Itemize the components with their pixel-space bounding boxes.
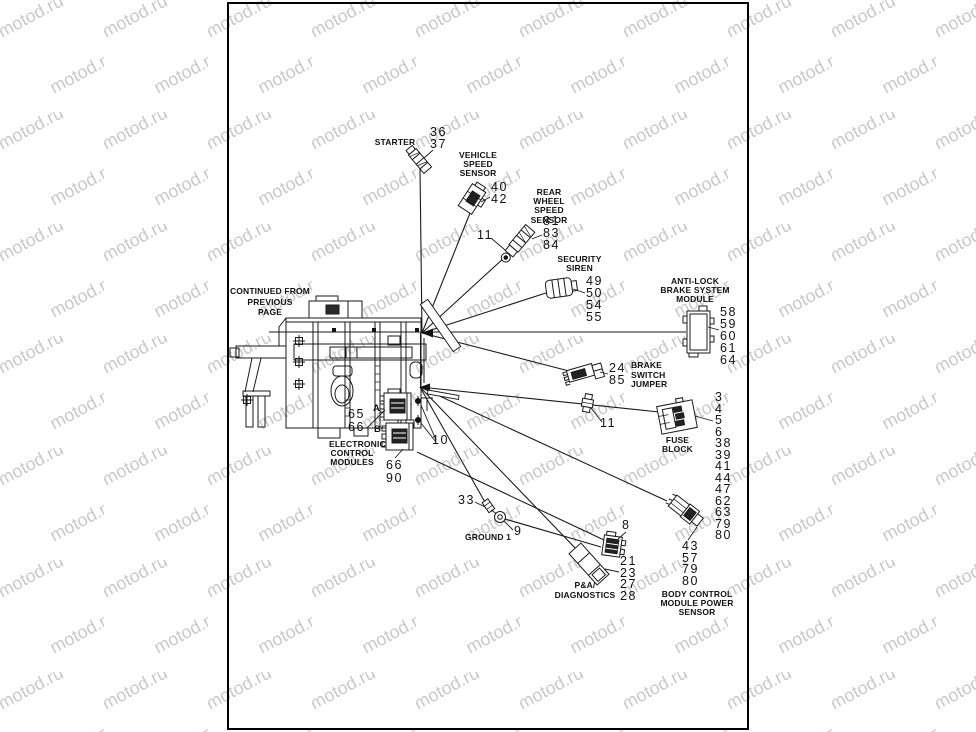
bcm-power-sensor-callout-numbers: 43 57 79 80: [682, 541, 699, 587]
brake-switch-jumper-label: BRAKE SWITCH JUMPER: [631, 361, 671, 390]
pa-diag-ref-8: 8: [622, 519, 631, 531]
ground-1-label: GROUND 1: [462, 533, 514, 542]
brake-switch-jumper-callout-numbers: 24 85: [609, 362, 626, 386]
parts-diagram-page: { "watermark": { "text": "motod.ru", "co…: [0, 0, 976, 732]
starter-callout-numbers: 36 37: [430, 126, 447, 150]
fuse-block-label: FUSE BLOCK: [658, 436, 697, 454]
pa-diagnostics-label: P&A/ DIAGNOSTICS: [551, 581, 619, 600]
vehicle-speed-sensor-callout-numbers: 40 42: [491, 181, 508, 205]
abs-module-label: ANTI-LOCK BRAKE SYSTEM MODULE: [659, 277, 731, 305]
ground-ref-9: 9: [514, 525, 523, 537]
starter-label: STARTER: [372, 138, 418, 147]
abs-module-part: [683, 306, 714, 357]
rear-wheel-speed-sensor-callout-numbers: 81 83 84: [543, 215, 560, 251]
ecm-module-a: [380, 389, 411, 420]
ecm-ref-10: 10: [432, 434, 449, 446]
pa-diag-callout-numbers: 21 23 27 28: [620, 556, 637, 602]
jumper-ref-11: 11: [600, 417, 616, 429]
security-siren-label: SECURITY SIREN: [551, 255, 608, 273]
continued-from-previous-page-note: CONTINUED FROM PREVIOUS PAGE: [229, 286, 311, 318]
ecm-tag-a: A: [373, 404, 380, 414]
bcm-power-sensor-label: BODY CONTROL MODULE POWER SENSOR: [659, 590, 735, 618]
fuse-block-callout-numbers: 3 4 5 6 38 39 41 44 47 62 63 79 80: [715, 392, 732, 542]
ground-ref-33: 33: [458, 494, 475, 506]
watermark-layer: [0, 0, 976, 732]
vehicle-speed-sensor-label: VEHICLE SPEED SENSOR: [454, 151, 502, 179]
ecm-module-b: [382, 423, 413, 450]
abs-module-callout-numbers: 58 59 60 61 64: [720, 306, 737, 366]
ecm-b-callout-numbers: 66 90: [386, 459, 403, 485]
diagram-line-art: motod.ru motod.ru: [0, 0, 976, 732]
rear-wheel-ref-11: 11: [477, 229, 493, 241]
ecm-a-callout-numbers: 65 66: [348, 408, 365, 434]
security-siren-callout-numbers: 49 50 54 55: [586, 275, 603, 323]
electronic-control-modules-label: ELECTRONIC CONTROL MODULES: [329, 440, 375, 468]
ecm-tag-b: B: [374, 425, 381, 435]
